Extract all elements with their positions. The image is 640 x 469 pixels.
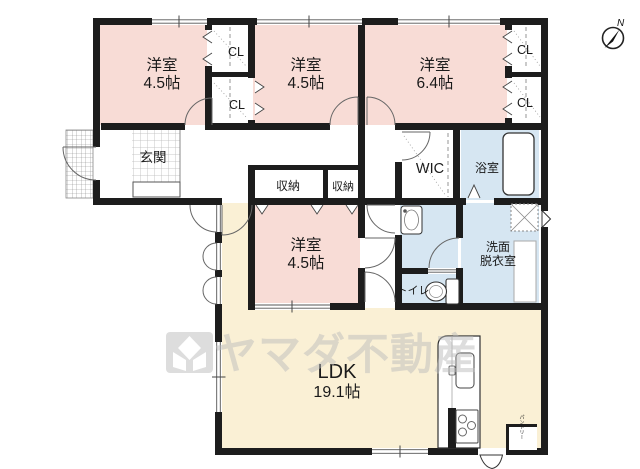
closet-bottom-b-label: CL: [517, 96, 533, 110]
bedroom-top-middle-label: 洋室: [290, 56, 321, 74]
bathtub: [503, 133, 534, 195]
wet-hall-door: [367, 205, 395, 233]
shoe-cabinet: [133, 182, 180, 197]
wic-label: WIC: [416, 161, 444, 177]
bedroom-top-right-label: 洋室: [419, 56, 450, 74]
ldk-strip-floor: [220, 203, 252, 310]
washbasin: [401, 206, 422, 234]
washroom-label-1: 洗面: [486, 240, 510, 254]
floor-plan-drawing: 洋室 4.5帖 洋室 4.5帖 洋室 6.4帖 洋室 4.5帖 LDK 19.1…: [0, 0, 640, 469]
ldk-size: 19.1帖: [313, 383, 360, 401]
linen-shelf: [514, 241, 536, 302]
corridor-ldk-door: [365, 272, 395, 302]
closet-top-b-label: CL: [517, 43, 533, 57]
bedroom-center-label: 洋室: [290, 236, 321, 254]
entrance-label: 玄関: [140, 149, 167, 165]
bedroom-center-size: 4.5帖: [287, 254, 324, 272]
brand-watermark: ヤマダ不動産: [166, 331, 478, 379]
closet-bottom-a-label: CL: [229, 98, 245, 112]
closet-top-a-label: CL: [228, 45, 244, 59]
washroom-label-2: 脱衣室: [480, 253, 516, 268]
bedroom-center-door: [365, 238, 395, 268]
pantry-label: パントリー: [519, 415, 525, 440]
ldk-main-floor: [220, 308, 543, 450]
bedroom-top-middle-floor: [253, 23, 360, 125]
compass-icon: N: [603, 18, 626, 49]
wic-door: [402, 132, 430, 160]
bathroom-label: 浴室: [475, 160, 499, 175]
toilet-label: トイレ: [397, 285, 430, 297]
storage-2-label: 収納: [332, 180, 354, 193]
ldk-exterior-door: [480, 455, 503, 469]
compass-north-label: N: [617, 18, 625, 29]
bedroom-top-left-size: 4.5帖: [143, 74, 180, 92]
storage-1-label: 収納: [276, 179, 300, 193]
brand-watermark-text: ヤマダ不動産: [214, 331, 478, 379]
stove: [456, 410, 478, 443]
bedroom-top-middle-size: 4.5帖: [287, 74, 324, 92]
floor-plan-image: 洋室 4.5帖 洋室 4.5帖 洋室 6.4帖 洋室 4.5帖 LDK 19.1…: [0, 0, 640, 469]
bedroom-top-left-label: 洋室: [146, 56, 177, 74]
bedroom-top-right-floor: [363, 23, 507, 125]
porch-hatch: [66, 130, 93, 198]
bedroom-top-right-size: 6.4帖: [416, 74, 453, 92]
bedroom-top-left-floor: [98, 23, 207, 125]
